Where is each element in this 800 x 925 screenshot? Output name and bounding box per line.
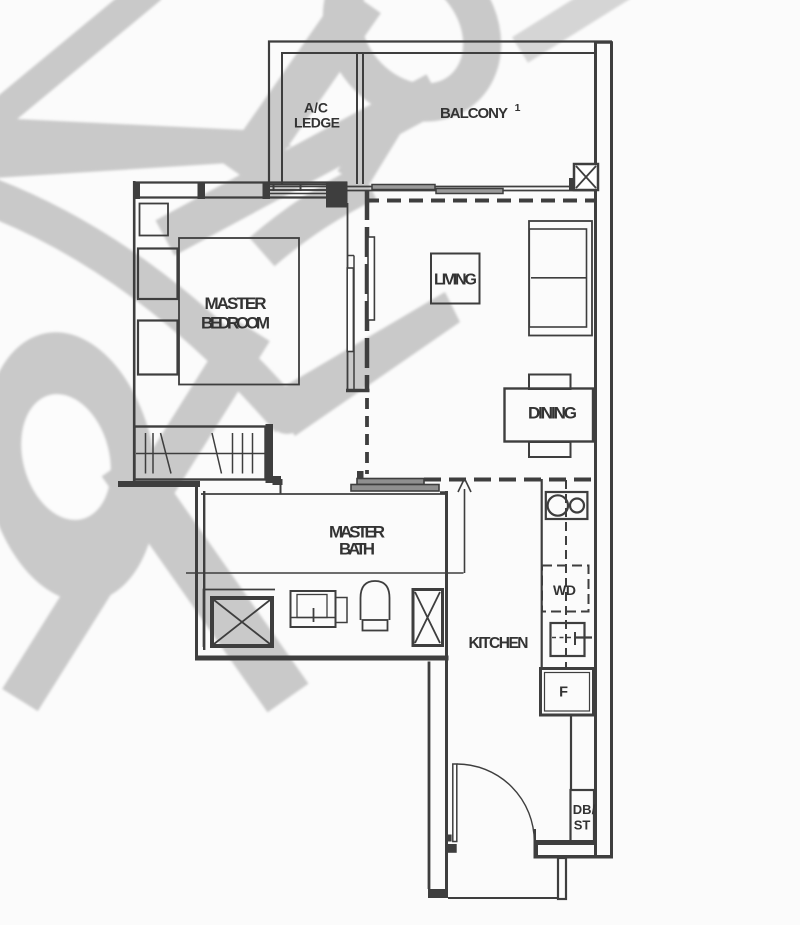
svg-text:DB/: DB/: [573, 802, 596, 817]
svg-text:BATH: BATH: [339, 540, 375, 559]
svg-text:F: F: [559, 685, 568, 701]
svg-text:ST: ST: [574, 818, 591, 833]
svg-text:BALCONY: BALCONY: [440, 105, 508, 122]
svg-text:LIVING: LIVING: [434, 272, 477, 289]
svg-text:BEDROOM: BEDROOM: [201, 314, 270, 333]
svg-text:MASTER: MASTER: [205, 294, 267, 313]
svg-text:LEDGE: LEDGE: [294, 115, 340, 131]
svg-text:KITCHEN: KITCHEN: [469, 635, 529, 652]
svg-text:DINING: DINING: [528, 404, 577, 423]
svg-text:A/C: A/C: [304, 100, 328, 116]
svg-text:1: 1: [515, 102, 521, 114]
svg-text:WD: WD: [553, 582, 576, 598]
